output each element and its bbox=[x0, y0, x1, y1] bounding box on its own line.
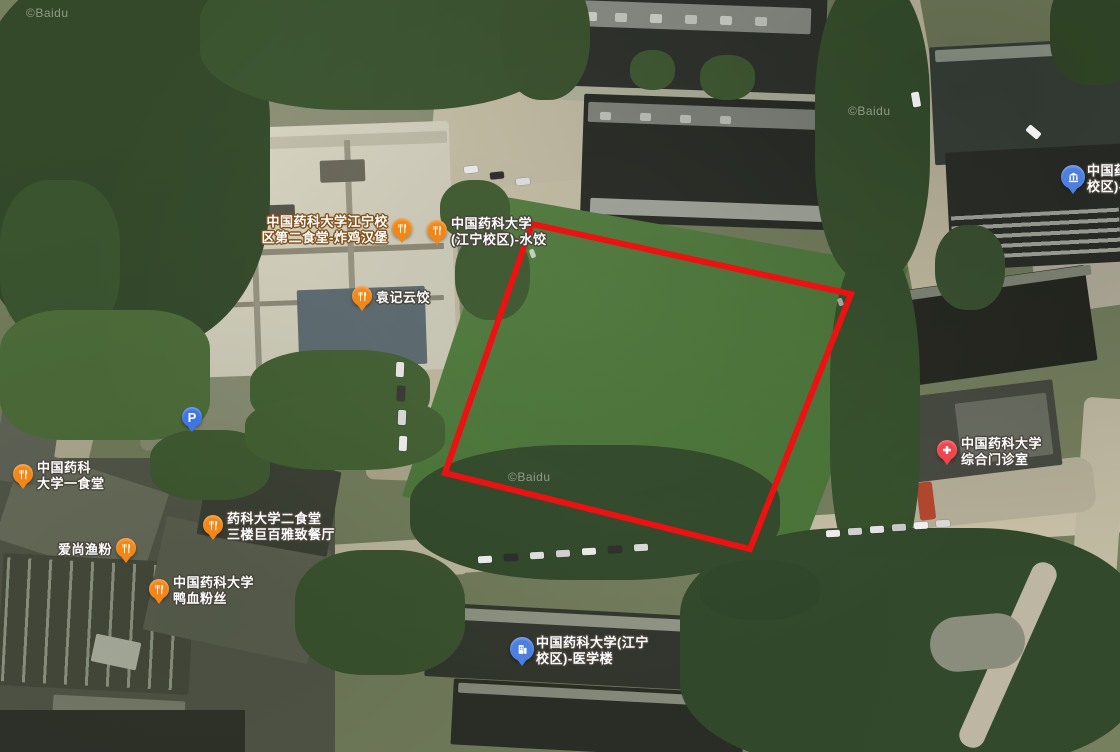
restaurant-pin[interactable] bbox=[352, 286, 372, 306]
poi-label-canteen2-fried-chicken[interactable]: 中国药科大学江宁校区第二食堂-炸鸡汉堡 bbox=[262, 214, 388, 246]
poi-label-line: 药科大学二食堂 bbox=[227, 511, 335, 527]
clinic-pin[interactable] bbox=[937, 440, 957, 460]
poi-label-line: 三楼巨百雅致餐厅 bbox=[227, 527, 335, 543]
poi-label-line: 校区)-医学楼 bbox=[536, 651, 649, 667]
poi-label-general-clinic[interactable]: 中国药科大学综合门诊室 bbox=[961, 436, 1042, 468]
institution-icon bbox=[1067, 171, 1080, 184]
poi-label-aishang-yufen[interactable]: 爱尚渔粉 bbox=[58, 542, 112, 558]
poi-label-campus-northeast[interactable]: 中国药科校区)- bbox=[1087, 163, 1120, 195]
poi-label-line: 中国药科大学(江宁 bbox=[536, 635, 649, 651]
restaurant-utensils-icon bbox=[154, 584, 165, 595]
restaurant-pin[interactable] bbox=[116, 538, 136, 558]
building-icon bbox=[516, 643, 529, 656]
poi-label-line: 大学一食堂 bbox=[37, 476, 105, 492]
poi-label-jiangning-shuijiao[interactable]: 中国药科大学(江宁校区)-水饺 bbox=[451, 216, 547, 248]
poi-label-line: 中国药科 bbox=[37, 460, 105, 476]
poi-layer: 中国药科大学江宁校区第二食堂-炸鸡汉堡中国药科大学(江宁校区)-水饺袁记云饺P中… bbox=[0, 0, 1120, 752]
restaurant-pin[interactable] bbox=[13, 464, 33, 484]
restaurant-utensils-icon bbox=[397, 223, 408, 234]
restaurant-utensils-icon bbox=[121, 543, 132, 554]
poi-label-line: 中国药科 bbox=[1087, 163, 1120, 179]
poi-label-line: 中国药科大学 bbox=[451, 216, 547, 232]
restaurant-pin[interactable] bbox=[427, 220, 447, 240]
building-pin[interactable] bbox=[510, 637, 534, 661]
restaurant-pin[interactable] bbox=[149, 579, 169, 599]
poi-label-duck-blood-vermicelli[interactable]: 中国药科大学鸭血粉丝 bbox=[173, 575, 254, 607]
restaurant-pin[interactable] bbox=[203, 515, 223, 535]
poi-label-line: 中国药科大学 bbox=[961, 436, 1042, 452]
poi-label-line: 鸭血粉丝 bbox=[173, 591, 254, 607]
poi-label-line: 中国药科大学 bbox=[173, 575, 254, 591]
poi-label-line: 综合门诊室 bbox=[961, 452, 1042, 468]
poi-label-line: 区第二食堂-炸鸡汉堡 bbox=[262, 230, 388, 246]
poi-label-yuanji-yunjiao[interactable]: 袁记云饺 bbox=[376, 290, 430, 306]
medical-cross-icon bbox=[941, 444, 953, 456]
poi-label-line: (江宁校区)-水饺 bbox=[451, 232, 547, 248]
restaurant-utensils-icon bbox=[357, 291, 368, 302]
campus-pin[interactable] bbox=[1061, 165, 1085, 189]
poi-label-line: 袁记云饺 bbox=[376, 290, 430, 306]
restaurant-utensils-icon bbox=[18, 469, 29, 480]
poi-label-line: 校区)- bbox=[1087, 179, 1120, 195]
poi-label-canteen2-floor3-restaurant[interactable]: 药科大学二食堂三楼巨百雅致餐厅 bbox=[227, 511, 335, 543]
restaurant-utensils-icon bbox=[432, 225, 443, 236]
poi-label-canteen1[interactable]: 中国药科大学一食堂 bbox=[37, 460, 105, 492]
parking-pin[interactable]: P bbox=[182, 407, 202, 427]
poi-label-medical-building[interactable]: 中国药科大学(江宁校区)-医学楼 bbox=[536, 635, 649, 667]
restaurant-pin[interactable] bbox=[392, 218, 412, 238]
poi-label-line: 中国药科大学江宁校 bbox=[262, 214, 388, 230]
parking-letter-icon: P bbox=[188, 411, 197, 424]
restaurant-utensils-icon bbox=[208, 520, 219, 531]
poi-label-line: 爱尚渔粉 bbox=[58, 542, 112, 558]
satellite-map[interactable]: ©Baidu ©Baidu ©Baidu 中国药科大学江宁校区第二食堂-炸鸡汉堡… bbox=[0, 0, 1120, 752]
